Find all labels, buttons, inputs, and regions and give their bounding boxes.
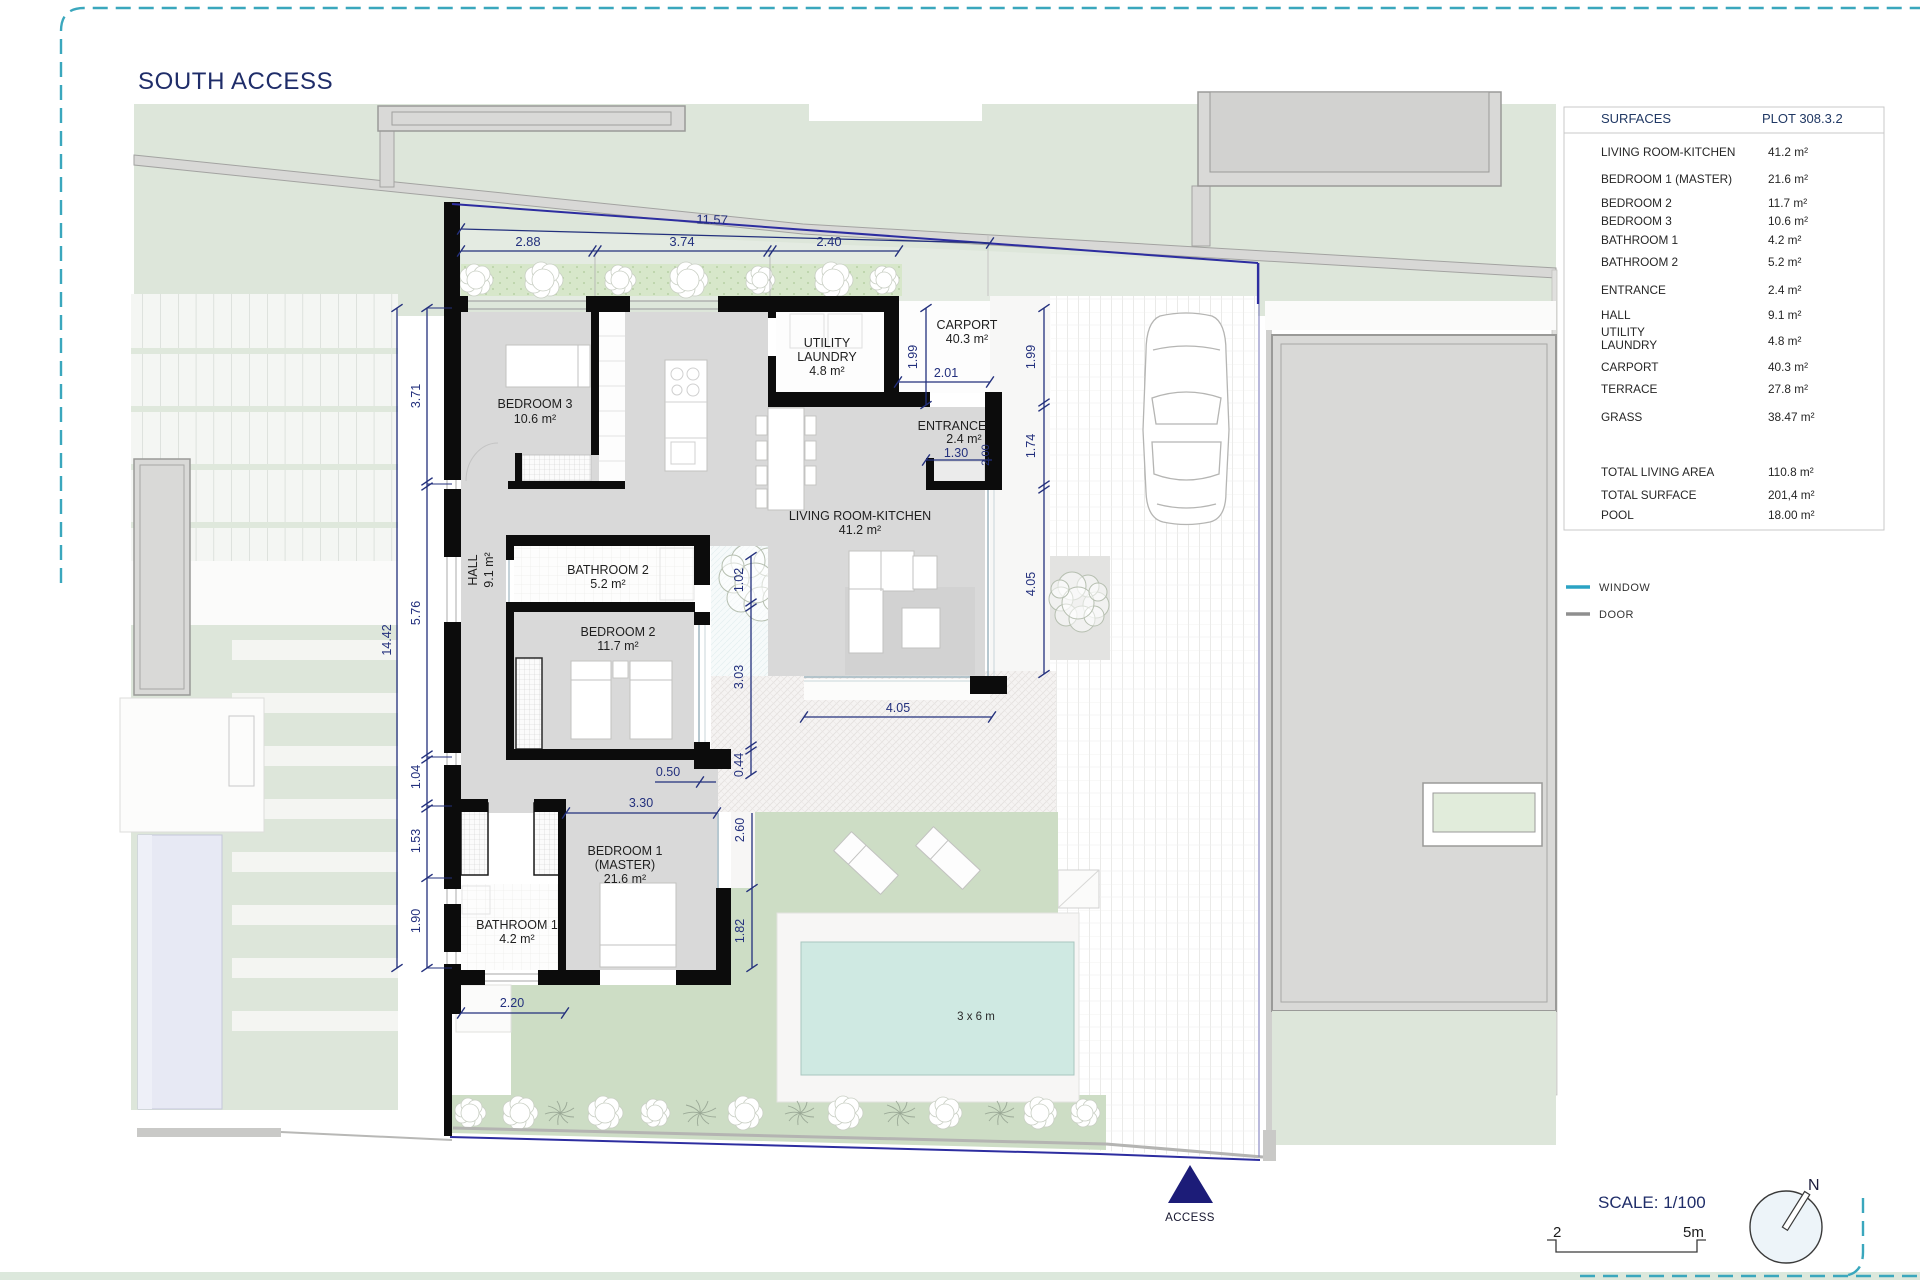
svg-text:UTILITY: UTILITY (1601, 325, 1645, 339)
svg-text:11.7 m²: 11.7 m² (597, 639, 638, 653)
svg-text:5m: 5m (1683, 1224, 1704, 1241)
svg-text:4.05: 4.05 (1024, 572, 1038, 596)
svg-text:2.20: 2.20 (500, 996, 524, 1010)
svg-text:3 x 6 m: 3 x 6 m (957, 1011, 995, 1023)
svg-text:40.3 m²: 40.3 m² (946, 332, 988, 346)
svg-text:1.02: 1.02 (732, 568, 746, 592)
svg-text:4.2 m²: 4.2 m² (499, 932, 534, 946)
svg-text:LIVING ROOM-KITCHEN: LIVING ROOM-KITCHEN (1601, 145, 1735, 159)
svg-text:2.40: 2.40 (816, 234, 841, 249)
svg-text:BEDROOM 3: BEDROOM 3 (1601, 214, 1672, 228)
svg-text:9.1 m²: 9.1 m² (1768, 308, 1802, 322)
svg-text:0.44: 0.44 (732, 753, 746, 777)
svg-text:10.6 m²: 10.6 m² (1768, 214, 1808, 228)
svg-text:4.2 m²: 4.2 m² (1768, 233, 1802, 247)
svg-text:UTILITY: UTILITY (804, 336, 851, 350)
svg-text:3.30: 3.30 (629, 796, 653, 810)
svg-text:1.53: 1.53 (409, 829, 423, 853)
svg-text:BATHROOM 1: BATHROOM 1 (476, 918, 558, 932)
svg-text:1.99: 1.99 (1024, 345, 1038, 369)
svg-text:2.88: 2.88 (515, 234, 540, 249)
svg-text:4.8 m²: 4.8 m² (1768, 334, 1802, 348)
svg-text:2.60: 2.60 (733, 818, 747, 842)
svg-text:BATHROOM 1: BATHROOM 1 (1601, 233, 1678, 247)
svg-text:10.6 m²: 10.6 m² (514, 412, 556, 426)
svg-text:DOOR: DOOR (1599, 609, 1634, 621)
svg-text:1.04: 1.04 (409, 765, 423, 789)
svg-text:SURFACES: SURFACES (1601, 111, 1671, 126)
svg-text:0.50: 0.50 (656, 765, 680, 779)
svg-text:TERRACE: TERRACE (1601, 382, 1658, 396)
svg-text:BEDROOM 2: BEDROOM 2 (1601, 196, 1672, 210)
svg-text:LAUNDRY: LAUNDRY (1601, 338, 1657, 352)
svg-text:3.03: 3.03 (732, 665, 746, 689)
svg-text:1.82: 1.82 (733, 919, 747, 943)
svg-text:ENTRANCE: ENTRANCE (1601, 283, 1666, 297)
svg-text:GRASS: GRASS (1601, 410, 1642, 424)
svg-text:11.57: 11.57 (696, 212, 728, 228)
svg-text:18.00 m²: 18.00 m² (1768, 508, 1815, 522)
svg-text:(MASTER): (MASTER) (595, 858, 655, 872)
svg-text:14.42: 14.42 (380, 624, 394, 655)
svg-text:SOUTH ACCESS: SOUTH ACCESS (138, 68, 333, 95)
svg-text:2: 2 (1553, 1224, 1561, 1241)
svg-text:41.2 m²: 41.2 m² (839, 523, 881, 537)
svg-text:9.1 m²: 9.1 m² (482, 552, 496, 587)
svg-text:BATHROOM 2: BATHROOM 2 (567, 563, 649, 577)
svg-text:5.2 m²: 5.2 m² (590, 577, 625, 591)
svg-text:HALL: HALL (1601, 308, 1631, 322)
svg-text:38.47 m²: 38.47 m² (1768, 410, 1815, 424)
svg-text:CARPORT: CARPORT (937, 318, 998, 332)
svg-text:BEDROOM 1: BEDROOM 1 (587, 844, 662, 858)
svg-text:1.74: 1.74 (1024, 434, 1038, 458)
svg-text:1.90: 1.90 (409, 909, 423, 933)
svg-text:2.4 m²: 2.4 m² (1768, 283, 1802, 297)
svg-text:2.00: 2.00 (980, 444, 992, 465)
svg-text:ACCESS: ACCESS (1165, 1212, 1215, 1224)
svg-text:21.6 m²: 21.6 m² (604, 872, 646, 886)
svg-text:LIVING ROOM-KITCHEN: LIVING ROOM-KITCHEN (789, 509, 931, 523)
svg-text:1.99: 1.99 (906, 345, 920, 369)
svg-text:11.7 m²: 11.7 m² (1768, 196, 1807, 210)
svg-text:HALL: HALL (466, 554, 480, 585)
svg-text:CARPORT: CARPORT (1601, 360, 1658, 374)
svg-text:201,4 m²: 201,4 m² (1768, 488, 1815, 502)
svg-text:3.74: 3.74 (669, 234, 694, 249)
svg-text:TOTAL LIVING AREA: TOTAL LIVING AREA (1601, 465, 1714, 479)
svg-text:BEDROOM 3: BEDROOM 3 (497, 397, 572, 411)
svg-text:SCALE: 1/100: SCALE: 1/100 (1598, 1193, 1706, 1212)
svg-text:BEDROOM 2: BEDROOM 2 (580, 625, 655, 639)
svg-text:4.05: 4.05 (886, 701, 910, 715)
svg-text:3.71: 3.71 (409, 384, 423, 408)
svg-text:110.8 m²: 110.8 m² (1768, 465, 1814, 479)
svg-text:40.3 m²: 40.3 m² (1768, 360, 1808, 374)
svg-text:27.8 m²: 27.8 m² (1768, 382, 1808, 396)
svg-text:POOL: POOL (1601, 508, 1634, 522)
svg-text:PLOT 308.3.2: PLOT 308.3.2 (1762, 111, 1843, 126)
svg-text:LAUNDRY: LAUNDRY (797, 350, 857, 364)
svg-text:4.8 m²: 4.8 m² (809, 364, 844, 378)
svg-text:TOTAL SURFACE: TOTAL SURFACE (1601, 488, 1697, 502)
svg-text:21.6 m²: 21.6 m² (1768, 172, 1808, 186)
svg-text:WINDOW: WINDOW (1599, 582, 1650, 594)
svg-text:41.2 m²: 41.2 m² (1768, 145, 1808, 159)
svg-text:ENTRANCE: ENTRANCE (918, 419, 987, 433)
svg-text:5.2 m²: 5.2 m² (1768, 255, 1802, 269)
svg-text:2.4 m²: 2.4 m² (946, 432, 981, 446)
svg-text:1.30: 1.30 (944, 446, 968, 460)
svg-text:5.76: 5.76 (409, 601, 423, 625)
svg-text:BEDROOM 1 (MASTER): BEDROOM 1 (MASTER) (1601, 172, 1732, 186)
svg-text:BATHROOM 2: BATHROOM 2 (1601, 255, 1678, 269)
svg-text:N: N (1808, 1177, 1820, 1194)
svg-text:2.01: 2.01 (934, 366, 958, 380)
